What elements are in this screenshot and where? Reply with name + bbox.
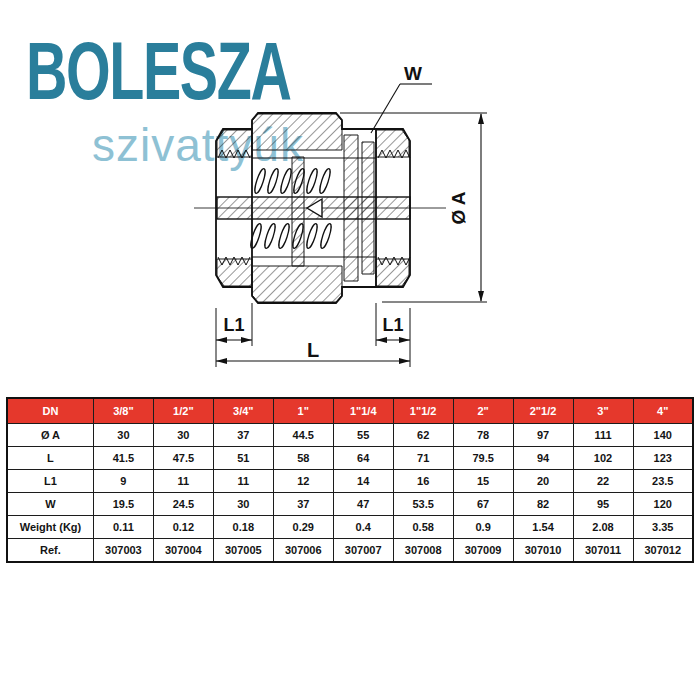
table-cell: 30: [153, 424, 213, 447]
table-cell: 11: [213, 470, 273, 493]
header-cell-dn: DN: [7, 398, 93, 424]
table-cell: 67: [453, 493, 513, 516]
dimension-l1-right: L1: [376, 303, 410, 367]
dim-label-l1-right: L1: [382, 315, 403, 335]
table-cell: 307005: [213, 539, 273, 563]
table-cell: 307008: [393, 539, 453, 563]
spec-table-header-row: DN3/8"1/2"3/4"1"1"1/41"1/22"2"1/23"4": [7, 398, 693, 424]
table-cell: 15: [453, 470, 513, 493]
table-row: Weight (Kg)0.110.120.180.290.40.580.91.5…: [7, 516, 693, 539]
table-cell: 47.5: [153, 447, 213, 470]
table-cell: 307012: [633, 539, 693, 563]
table-cell: 307003: [93, 539, 153, 563]
table-cell: 0.4: [333, 516, 393, 539]
row-label: W: [7, 493, 93, 516]
table-cell: 0.29: [273, 516, 333, 539]
dim-label-l: L: [307, 339, 319, 361]
table-cell: 41.5: [93, 447, 153, 470]
table-cell: 20: [513, 470, 573, 493]
table-cell: 307010: [513, 539, 573, 563]
table-cell: 37: [273, 493, 333, 516]
table-cell: 44.5: [273, 424, 333, 447]
table-cell: 94: [513, 447, 573, 470]
table-cell: 14: [333, 470, 393, 493]
table-cell: 95: [573, 493, 633, 516]
header-cell-size: 1": [273, 398, 333, 424]
table-cell: 0.11: [93, 516, 153, 539]
table-cell: 19.5: [93, 493, 153, 516]
row-label: Ref.: [7, 539, 93, 563]
table-cell: 0.18: [213, 516, 273, 539]
table-cell: 79.5: [453, 447, 513, 470]
table-cell: 78: [453, 424, 513, 447]
table-cell: 71: [393, 447, 453, 470]
table-cell: 23.5: [633, 470, 693, 493]
table-cell: 0.58: [393, 516, 453, 539]
row-label: Weight (Kg): [7, 516, 93, 539]
table-row: Ref.307003307004307005307006307007307008…: [7, 539, 693, 563]
table-cell: 111: [573, 424, 633, 447]
spec-table-body: Ø A30303744.555627897111140L41.547.55158…: [7, 424, 693, 563]
table-cell: 307006: [273, 539, 333, 563]
row-label: Ø A: [7, 424, 93, 447]
table-cell: 24.5: [153, 493, 213, 516]
dimension-l: L: [216, 339, 410, 364]
table-cell: 0.12: [153, 516, 213, 539]
table-cell: 1.54: [513, 516, 573, 539]
table-cell: 3.35: [633, 516, 693, 539]
header-cell-size: 1"1/4: [333, 398, 393, 424]
table-cell: 307004: [153, 539, 213, 563]
dim-label-dia-a: Ø A: [448, 191, 469, 224]
table-cell: 102: [573, 447, 633, 470]
table-cell: 0.9: [453, 516, 513, 539]
dim-label-l1-left: L1: [223, 315, 244, 335]
header-cell-size: 3/4": [213, 398, 273, 424]
header-cell-size: 4": [633, 398, 693, 424]
table-cell: 12: [273, 470, 333, 493]
table-cell: 47: [333, 493, 393, 516]
valve-guide-bar: [217, 197, 410, 219]
header-cell-size: 3/8": [93, 398, 153, 424]
dimension-w: W: [371, 63, 432, 133]
table-cell: 62: [393, 424, 453, 447]
spec-table: DN3/8"1/2"3/4"1"1"1/41"1/22"2"1/23"4" Ø …: [6, 397, 694, 563]
table-cell: 53.5: [393, 493, 453, 516]
dim-label-w: W: [404, 63, 422, 84]
table-cell: 123: [633, 447, 693, 470]
table-cell: 307009: [453, 539, 513, 563]
table-cell: 16: [393, 470, 453, 493]
header-cell-size: 2"1/2: [513, 398, 573, 424]
table-cell: 37: [213, 424, 273, 447]
table-cell: 140: [633, 424, 693, 447]
table-cell: 30: [213, 493, 273, 516]
table-cell: 55: [333, 424, 393, 447]
table-cell: 64: [333, 447, 393, 470]
table-cell: 22: [573, 470, 633, 493]
header-cell-size: 3": [573, 398, 633, 424]
table-row: L41.547.55158647179.594102123: [7, 447, 693, 470]
table-row: W19.524.530374753.5678295120: [7, 493, 693, 516]
dimension-l1-left: L1: [216, 303, 252, 367]
table-cell: 51: [213, 447, 273, 470]
table-row: L19111112141615202223.5: [7, 470, 693, 493]
header-cell-size: 1"1/2: [393, 398, 453, 424]
table-cell: 307007: [333, 539, 393, 563]
table-cell: 120: [633, 493, 693, 516]
datasheet-page: BOLESZA szivattyúk: [0, 0, 700, 700]
row-label: L: [7, 447, 93, 470]
header-cell-size: 2": [453, 398, 513, 424]
table-cell: 9: [93, 470, 153, 493]
row-label: L1: [7, 470, 93, 493]
table-cell: 82: [513, 493, 573, 516]
table-cell: 58: [273, 447, 333, 470]
table-row: Ø A30303744.555627897111140: [7, 424, 693, 447]
valve-technical-drawing: W Ø A L1 L1: [0, 0, 700, 700]
table-cell: 30: [93, 424, 153, 447]
table-cell: 11: [153, 470, 213, 493]
header-cell-size: 1/2": [153, 398, 213, 424]
table-cell: 307011: [573, 539, 633, 563]
table-cell: 2.08: [573, 516, 633, 539]
table-cell: 97: [513, 424, 573, 447]
